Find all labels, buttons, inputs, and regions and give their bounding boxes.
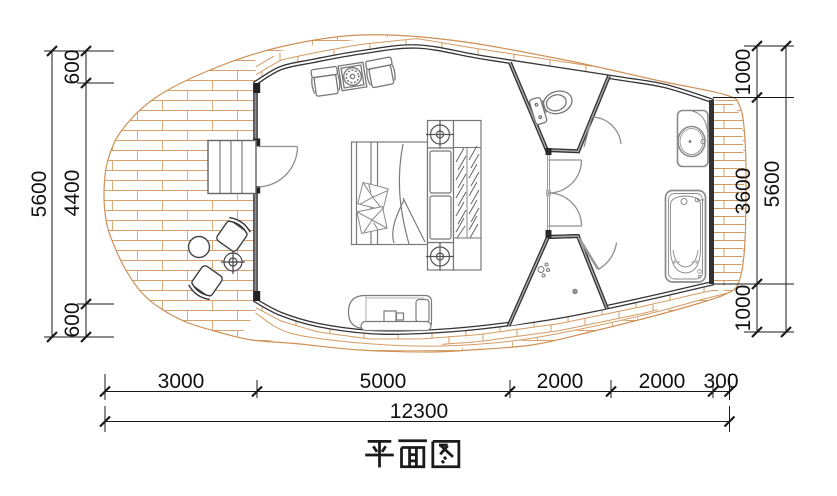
svg-text:1000: 1000 — [732, 285, 755, 332]
svg-text:5000: 5000 — [360, 370, 407, 393]
svg-text:5600: 5600 — [761, 161, 784, 208]
svg-text:2000: 2000 — [537, 370, 584, 393]
svg-text:4400: 4400 — [61, 170, 84, 217]
svg-text:1000: 1000 — [732, 49, 755, 96]
svg-text:3000: 3000 — [158, 370, 205, 393]
svg-text:600: 600 — [61, 49, 84, 84]
svg-text:300: 300 — [703, 370, 738, 393]
svg-text:600: 600 — [61, 302, 84, 337]
svg-text:2000: 2000 — [639, 370, 686, 393]
svg-text:3600: 3600 — [732, 168, 755, 215]
svg-text:12300: 12300 — [390, 400, 448, 423]
svg-text:5600: 5600 — [28, 171, 51, 218]
